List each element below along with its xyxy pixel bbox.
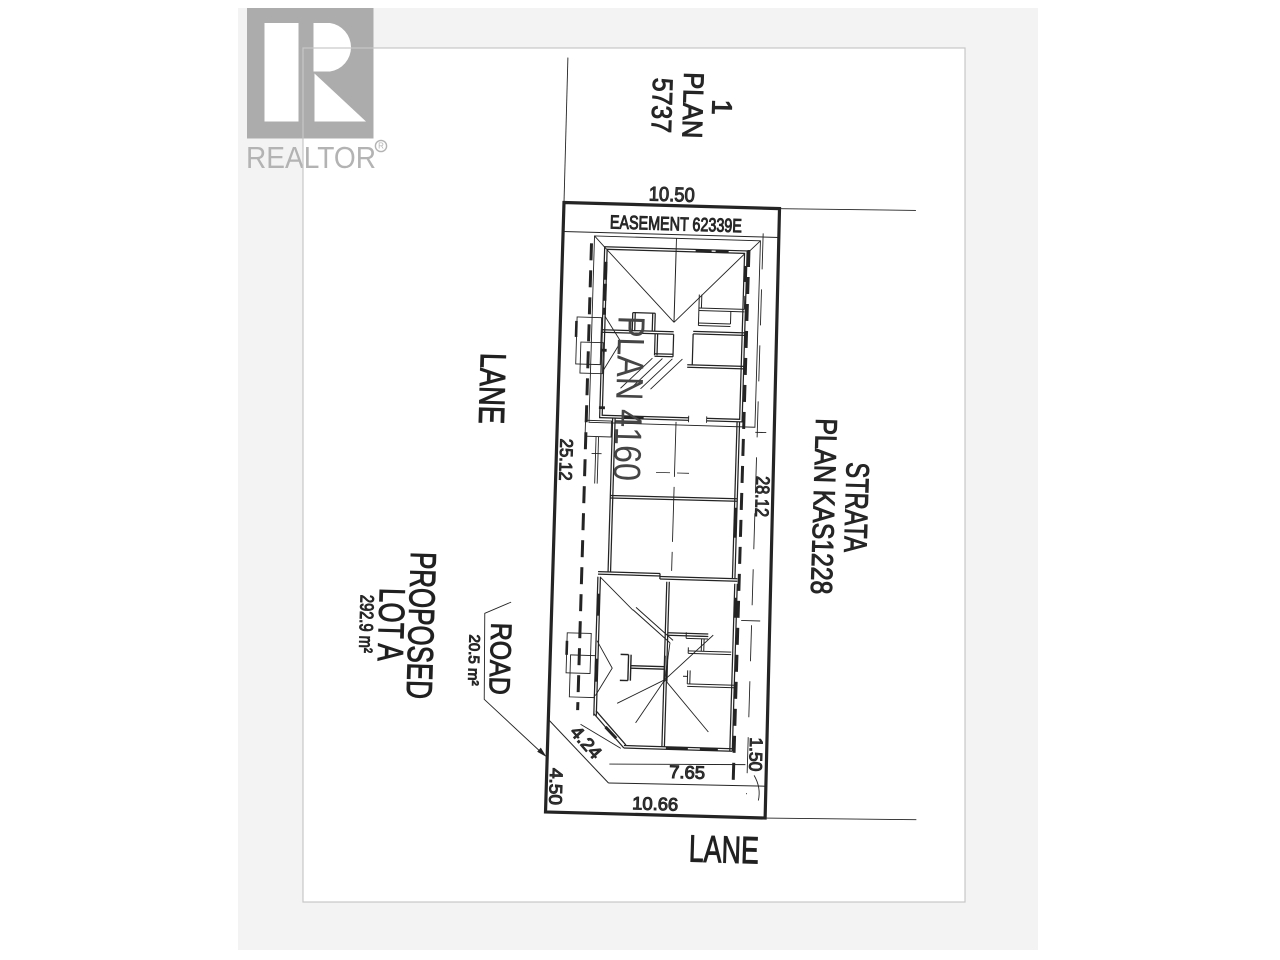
svg-text:1: 1 [706, 99, 737, 115]
svg-text:7.65: 7.65 [669, 762, 706, 783]
svg-text:4.50: 4.50 [545, 768, 566, 806]
svg-text:PLAN 4160: PLAN 4160 [605, 315, 652, 481]
svg-text:5737: 5737 [646, 77, 679, 133]
svg-text:REALTOR: REALTOR [246, 140, 376, 175]
svg-text:LANE: LANE [471, 352, 514, 424]
svg-text:PLAN: PLAN [676, 72, 709, 139]
svg-text:28.12: 28.12 [750, 476, 772, 518]
svg-text:LANE: LANE [688, 828, 759, 872]
svg-text:1.50: 1.50 [745, 737, 766, 772]
svg-text:25.12: 25.12 [555, 438, 576, 481]
svg-text:10.50: 10.50 [648, 184, 695, 207]
svg-text:R: R [378, 142, 384, 151]
svg-text:10.66: 10.66 [632, 793, 679, 814]
svg-text:ROAD: ROAD [482, 622, 516, 695]
svg-text:EASEMENT 62339E: EASEMENT 62339E [610, 212, 743, 237]
svg-text:292.9 m²: 292.9 m² [354, 594, 377, 653]
svg-text:PLAN KAS1228: PLAN KAS1228 [804, 418, 842, 595]
svg-text:20.5 m²: 20.5 m² [464, 634, 483, 685]
svg-text:STRATA: STRATA [837, 462, 876, 554]
